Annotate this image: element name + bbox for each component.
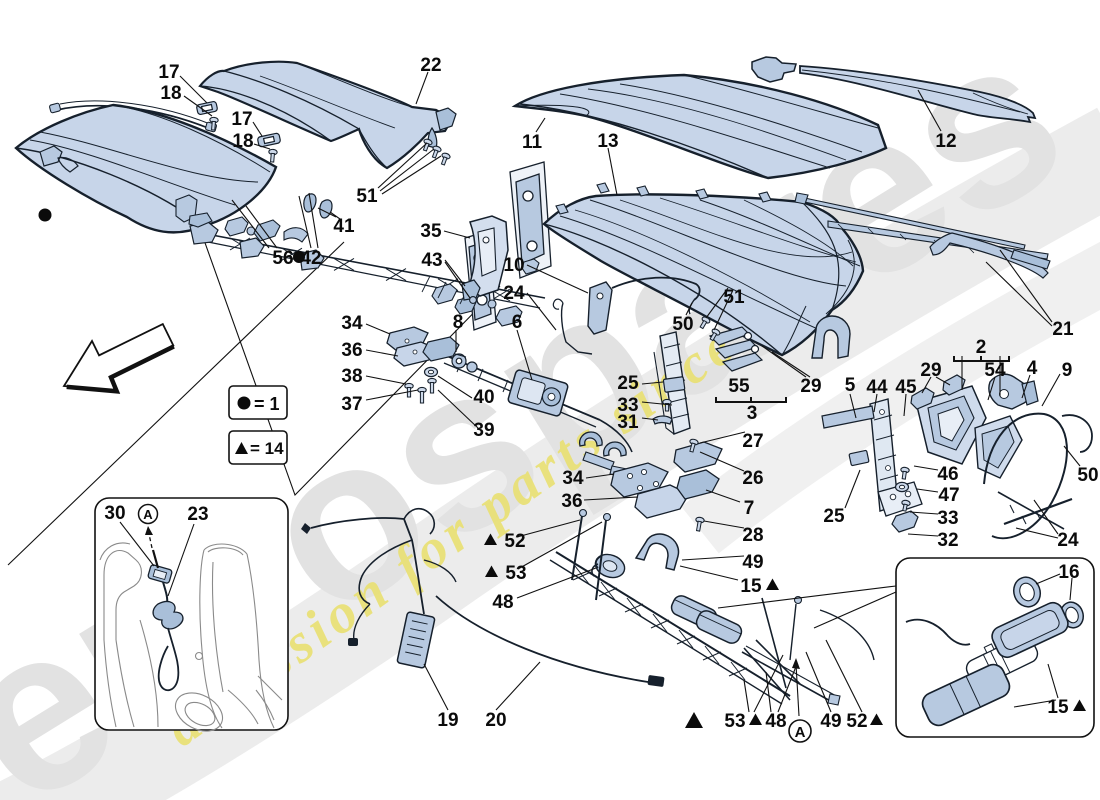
svg-text:15: 15 [740,576,762,597]
svg-text:53: 53 [505,563,526,584]
svg-text:5: 5 [845,375,856,396]
svg-text:40: 40 [473,387,494,408]
svg-text:25: 25 [617,373,639,394]
svg-text:55: 55 [728,376,750,397]
svg-text:31: 31 [617,412,639,433]
svg-text:17: 17 [231,109,252,130]
svg-text:34: 34 [562,468,584,489]
svg-text:49: 49 [820,711,841,732]
svg-text:22: 22 [420,55,441,76]
svg-text:47: 47 [938,485,959,506]
svg-text:6: 6 [512,312,523,333]
svg-text:34: 34 [341,313,363,334]
svg-text:46: 46 [937,464,958,485]
svg-text:19: 19 [437,710,458,731]
svg-text:15: 15 [1047,697,1069,718]
svg-text:20: 20 [485,710,506,731]
svg-text:4: 4 [1027,358,1038,379]
svg-text:24: 24 [1057,530,1079,551]
svg-text:39: 39 [473,420,494,441]
svg-text:27: 27 [742,431,763,452]
svg-text:51: 51 [723,287,745,308]
svg-text:A: A [795,724,806,741]
svg-text:9: 9 [1062,360,1073,381]
svg-text:36: 36 [561,491,582,512]
svg-text:3: 3 [747,403,758,424]
svg-text:2: 2 [976,337,987,358]
svg-text:54: 54 [984,360,1006,381]
svg-text:38: 38 [341,366,362,387]
svg-text:48: 48 [765,711,786,732]
svg-text:28: 28 [742,525,763,546]
svg-text:44: 44 [866,377,888,398]
svg-text:36: 36 [341,340,362,361]
svg-text:50: 50 [1077,465,1098,486]
svg-text:45: 45 [895,377,917,398]
svg-text:35: 35 [420,221,442,242]
svg-text:16: 16 [1058,562,1079,583]
svg-text:10: 10 [503,255,524,276]
svg-text:52: 52 [504,531,525,552]
svg-text:11: 11 [522,132,543,153]
svg-text:23: 23 [187,504,208,525]
svg-text:= 1: = 1 [254,394,280,414]
svg-text:32: 32 [937,530,958,551]
svg-text:53: 53 [724,711,745,732]
svg-text:21: 21 [1052,319,1074,340]
svg-text:48: 48 [492,592,513,613]
svg-text:49: 49 [742,552,763,573]
svg-text:50: 50 [672,314,693,335]
svg-text:51: 51 [356,186,378,207]
svg-text:12: 12 [935,131,956,152]
svg-text:18: 18 [160,83,181,104]
svg-text:26: 26 [742,468,763,489]
svg-text:52: 52 [846,711,867,732]
svg-text:= 14: = 14 [250,439,284,458]
svg-text:29: 29 [800,376,821,397]
svg-text:56: 56 [272,248,293,269]
svg-text:17: 17 [158,62,179,83]
svg-text:29: 29 [920,360,941,381]
svg-text:18: 18 [232,131,253,152]
svg-text:30: 30 [104,503,125,524]
svg-text:24: 24 [503,283,525,304]
svg-text:A: A [143,507,153,522]
svg-text:41: 41 [333,216,355,237]
svg-text:13: 13 [597,131,618,152]
svg-text:43: 43 [421,250,442,271]
svg-text:8: 8 [453,312,464,333]
svg-text:33: 33 [937,508,958,529]
svg-text:7: 7 [744,498,755,519]
svg-text:25: 25 [823,506,845,527]
svg-text:37: 37 [341,394,362,415]
